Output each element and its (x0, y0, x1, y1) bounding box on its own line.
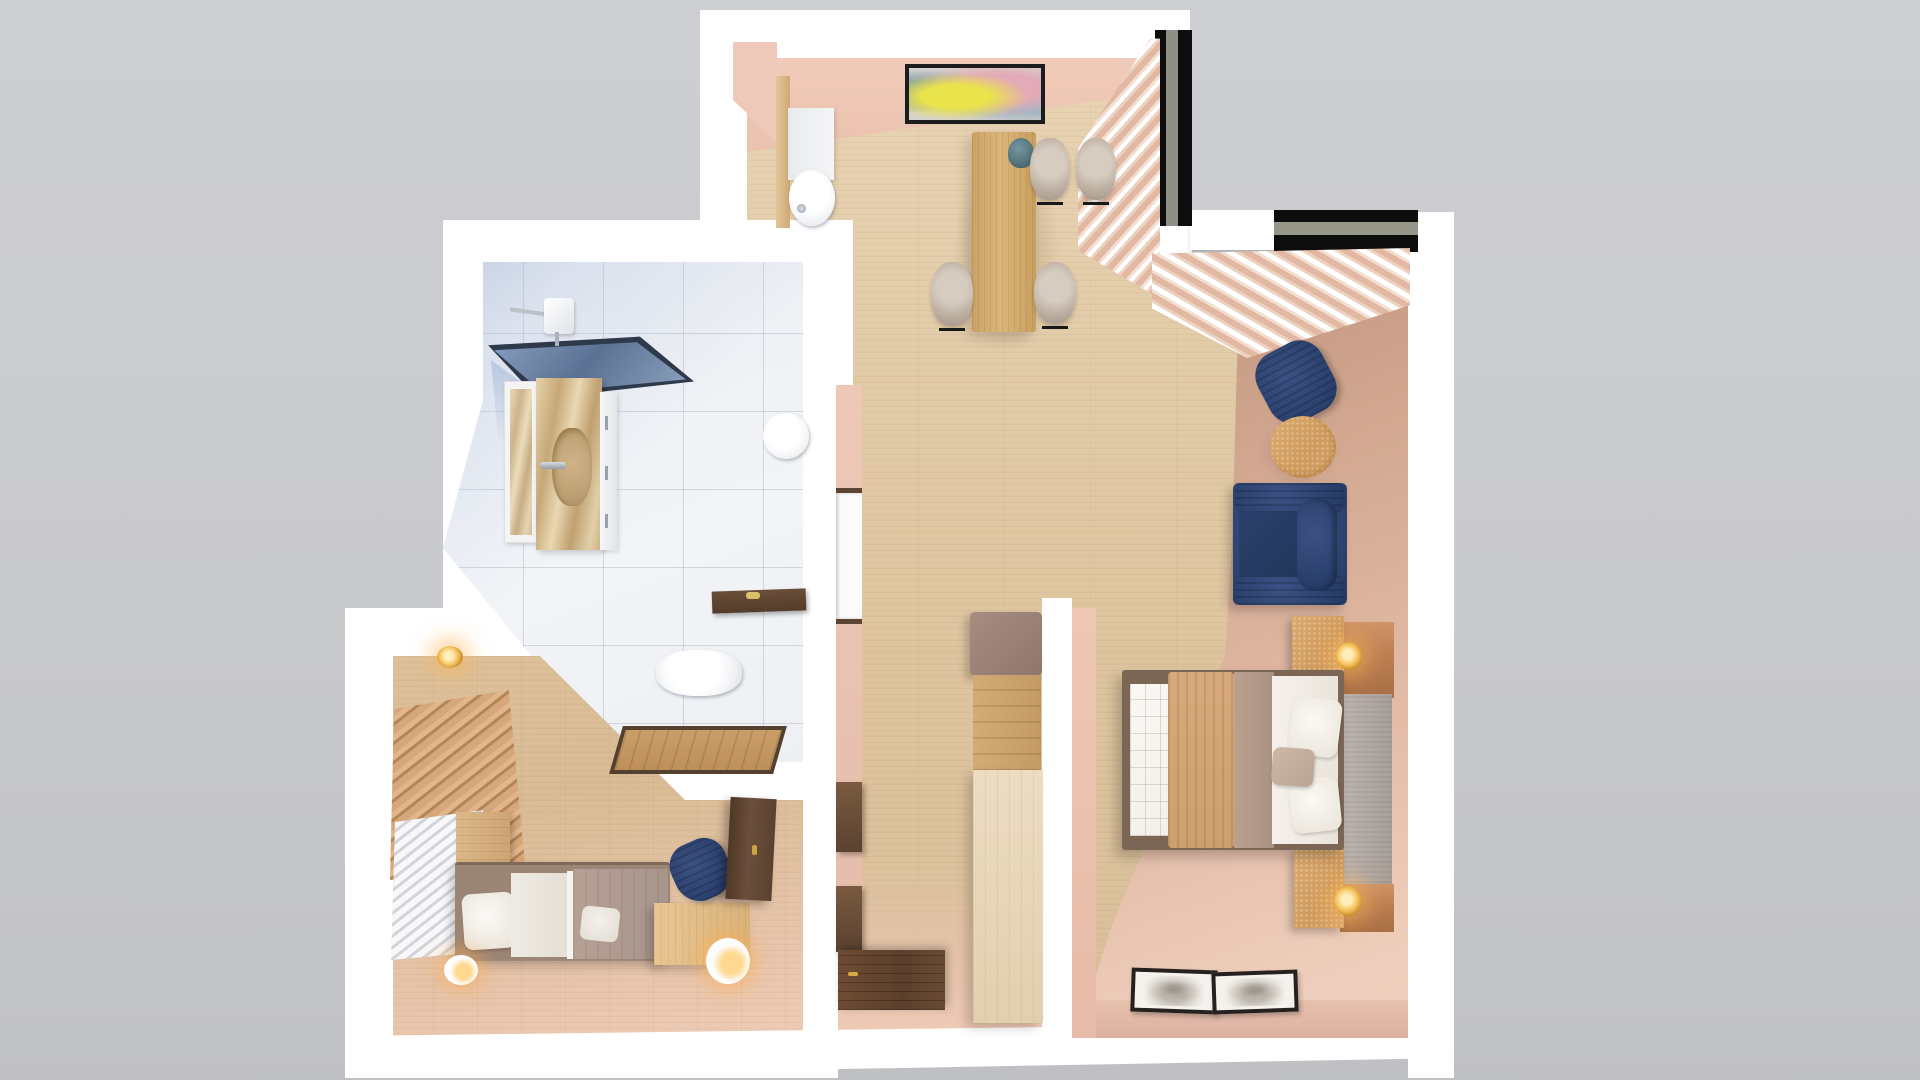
double-bed (1122, 670, 1344, 850)
wall-shelf (836, 782, 862, 852)
bed-pillow (461, 891, 517, 950)
vanity-faucet (540, 462, 566, 469)
column-wood-shelves (973, 675, 1041, 771)
entry-door (838, 950, 945, 1010)
master-bedroom (1080, 600, 1410, 1040)
drawer-handle (605, 466, 608, 480)
round-coffee-table (1270, 416, 1336, 478)
accent-pillow (579, 905, 620, 943)
nightstand (1294, 848, 1344, 928)
print-art (1219, 977, 1292, 1007)
drawer-handle (605, 514, 608, 528)
camel-throw (1168, 672, 1234, 848)
mirror-reflection (510, 389, 532, 535)
rain-shower-head (544, 298, 574, 334)
dining-chair (1034, 262, 1076, 324)
print-art (1137, 975, 1210, 1007)
column-stone-base (973, 770, 1043, 1023)
sofa (1233, 483, 1347, 605)
dining-chair (1076, 138, 1116, 200)
sofa-back-cushion (1297, 499, 1337, 591)
shower-pipe (555, 332, 559, 346)
floor-plan-scene (0, 0, 1920, 1080)
floor-print (1211, 970, 1298, 1015)
bed-runner (1234, 672, 1274, 848)
window-frame-horizontal (1274, 210, 1418, 252)
drawer-unit (600, 392, 617, 550)
column-seat-cushion (970, 612, 1042, 676)
bench-soap (746, 592, 760, 599)
hall-bedroom-wall (1042, 598, 1072, 1038)
abstract-painting (905, 64, 1045, 124)
bed-sheet (511, 873, 569, 957)
wall-shelf (836, 886, 862, 952)
kids-bedroom (345, 608, 838, 1078)
wardrobe-handle (752, 845, 757, 855)
walnut-wardrobe (725, 797, 776, 901)
living-nook (1220, 330, 1420, 620)
sconce-lamp (1336, 642, 1362, 670)
accent-pillow (1271, 747, 1316, 788)
hallway (836, 598, 1046, 1038)
wall-sconce (437, 646, 463, 668)
upholstered-headboard (1344, 694, 1392, 888)
entry-door-handle (848, 972, 858, 976)
sconce-lamp (1334, 886, 1362, 916)
framed-mirror (504, 381, 539, 543)
single-bed (455, 862, 670, 961)
shower-arm (510, 307, 548, 316)
bedside-cabinet (456, 812, 510, 868)
wall-hung-toilet (760, 410, 812, 462)
floor-print (1130, 968, 1217, 1015)
floor-lamp (444, 955, 478, 985)
dining-chair (1030, 138, 1070, 200)
drawer-handle (605, 416, 608, 430)
dining-chair (931, 262, 973, 326)
desk-floor-lamp (706, 938, 750, 984)
